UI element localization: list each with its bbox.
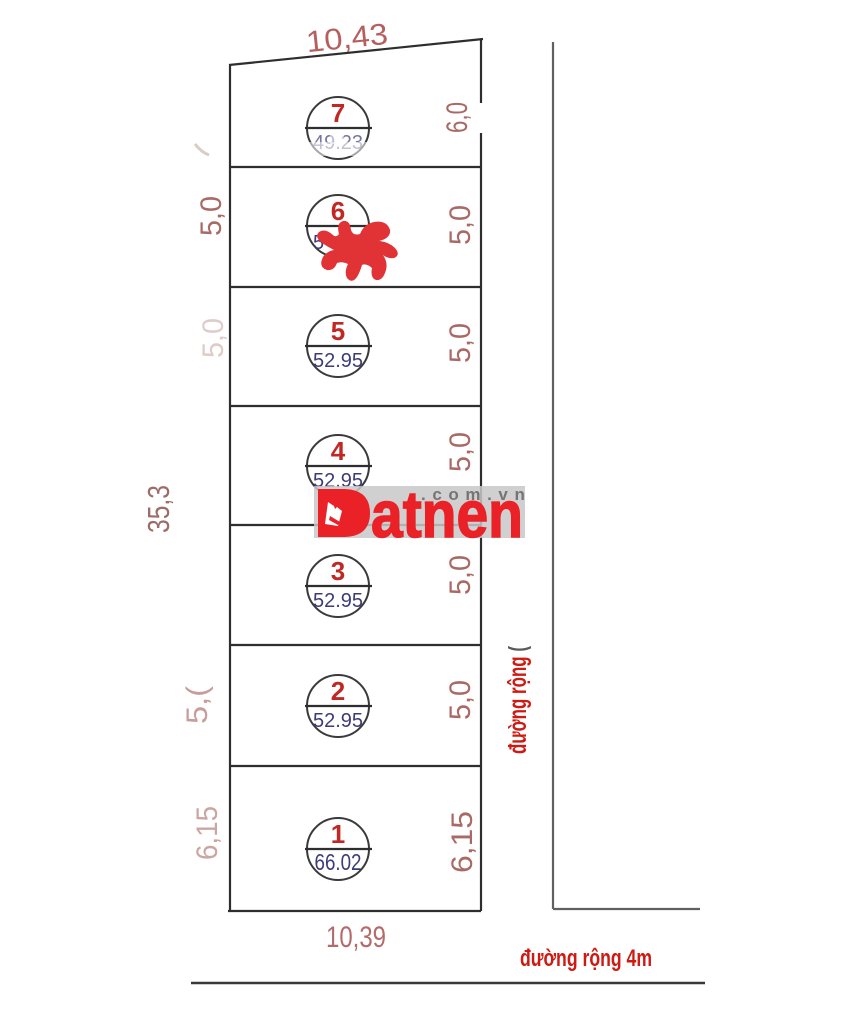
svg-text:7: 7 [331,98,345,128]
svg-text:6,15: 6,15 [446,811,479,873]
svg-text:10,39: 10,39 [326,921,386,954]
svg-text:5,(: 5,( [181,686,214,724]
svg-text:6,0: 6,0 [441,102,474,133]
svg-text:atnen: atnen [371,477,523,551]
svg-text:52.95: 52.95 [313,710,363,732]
svg-text:5,0: 5,0 [444,205,477,245]
svg-text:5,0: 5,0 [444,680,477,720]
svg-text:66.02: 66.02 [315,849,362,875]
svg-text:đường rộng 4m: đường rộng 4m [520,945,652,972]
svg-text:đường rộng (: đường rộng ( [504,646,532,754]
svg-text:3: 3 [331,556,345,586]
svg-text:52.95: 52.95 [313,350,363,372]
svg-text:5,0: 5,0 [444,323,477,363]
svg-text:35,3: 35,3 [141,485,176,533]
svg-text:5: 5 [331,316,345,346]
svg-text:5,0: 5,0 [197,318,230,358]
svg-text:2: 2 [331,676,345,706]
svg-text:52.95: 52.95 [313,590,363,612]
svg-text:6,15: 6,15 [191,806,224,860]
svg-text:4: 4 [331,436,346,466]
svg-text:1: 1 [331,819,345,849]
svg-text:5,0: 5,0 [444,432,477,472]
svg-text:5,0: 5,0 [195,196,228,236]
svg-text:5,0: 5,0 [444,555,477,595]
